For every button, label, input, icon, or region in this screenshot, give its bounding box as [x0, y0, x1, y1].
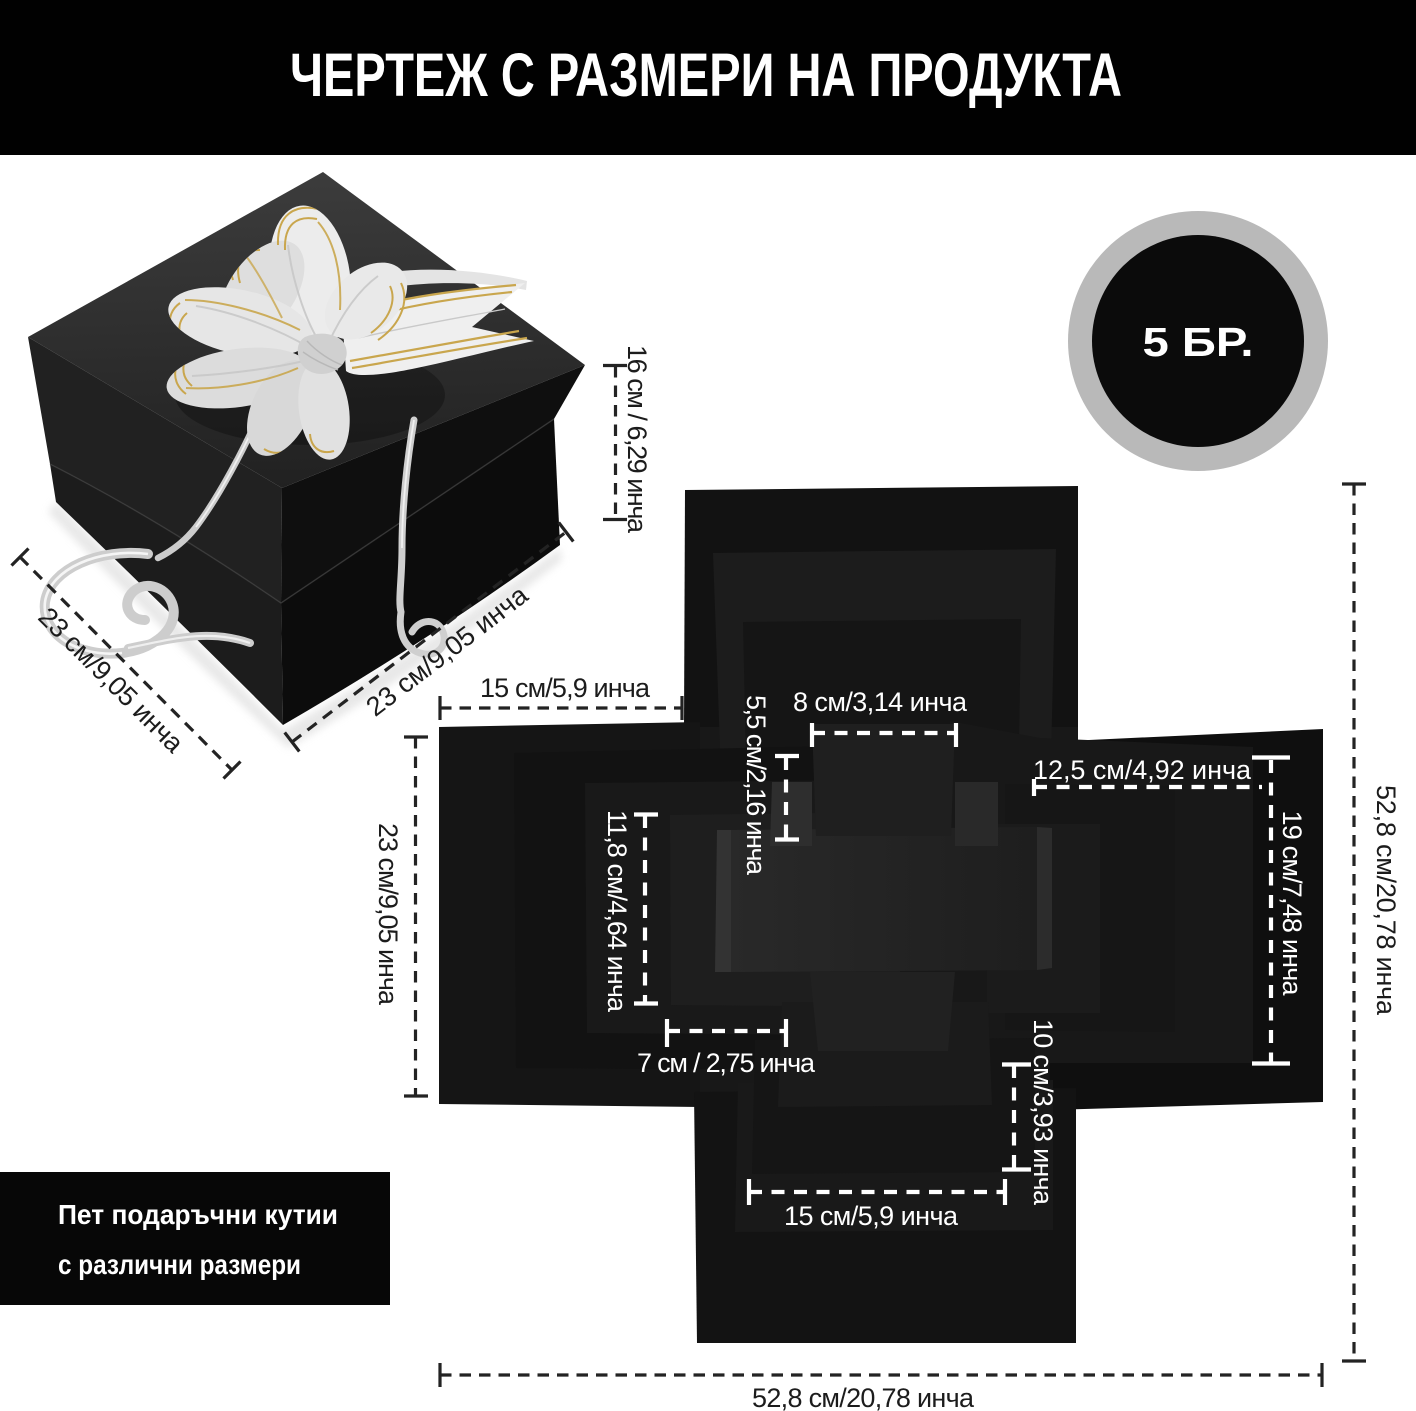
svg-text:23 см/9,05 инча: 23 см/9,05 инча	[373, 823, 403, 1006]
svg-text:11,8 см/4,64 инча: 11,8 см/4,64 инча	[602, 810, 632, 1013]
svg-text:15 см/5,9 инча: 15 см/5,9 инча	[480, 673, 651, 703]
svg-text:ЧЕРТЕЖ С РАЗМЕРИ НА ПРОДУКТА: ЧЕРТЕЖ С РАЗМЕРИ НА ПРОДУКТА	[290, 41, 1122, 109]
svg-text:Пет подаръчни кутии: Пет подаръчни кутии	[58, 1199, 338, 1230]
svg-text:52,8 см/20,78 инча: 52,8 см/20,78 инча	[752, 1383, 975, 1411]
svg-text:7 см / 2,75 инча: 7 см / 2,75 инча	[637, 1048, 816, 1078]
svg-text:52,8 см/20,78 инча: 52,8 см/20,78 инча	[1371, 785, 1401, 1016]
svg-text:15 см/5,9 инча: 15 см/5,9 инча	[784, 1201, 959, 1231]
svg-text:10 см/3,93 инча: 10 см/3,93 инча	[1028, 1019, 1058, 1206]
svg-text:8 см/3,14 инча: 8 см/3,14 инча	[793, 687, 968, 717]
svg-text:19 см/7,48 инча: 19 см/7,48 инча	[1277, 811, 1307, 997]
svg-text:16 см / 6,29 инча: 16 см / 6,29 инча	[622, 345, 652, 534]
svg-text:с различни размери: с различни размери	[58, 1249, 301, 1280]
svg-text:5 БР.: 5 БР.	[1143, 319, 1254, 365]
svg-text:5,5 см/2,16 инча: 5,5 см/2,16 инча	[741, 695, 771, 876]
svg-text:12,5 см/4,92 инча: 12,5 см/4,92 инча	[1033, 755, 1252, 785]
